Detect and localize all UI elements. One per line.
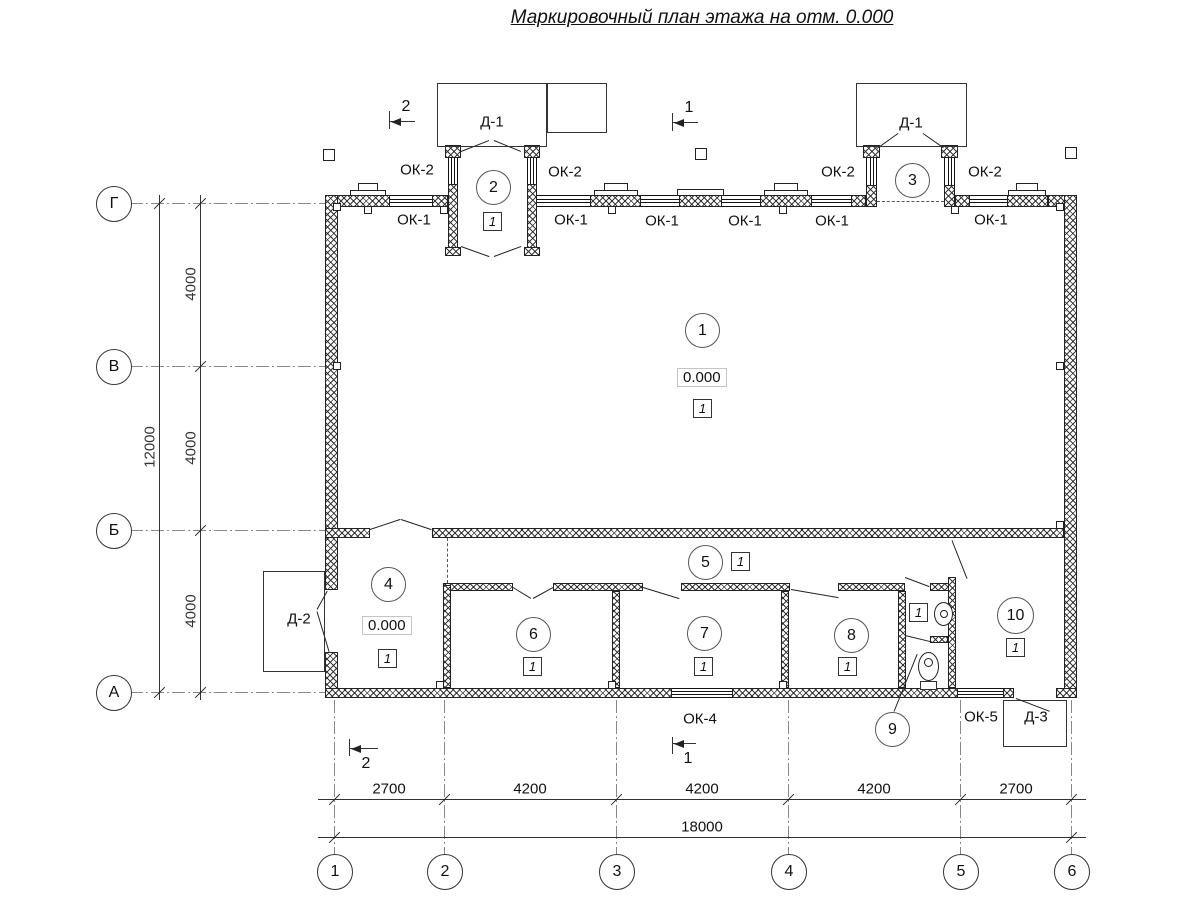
- room-number-label: 8: [847, 627, 856, 645]
- room-number-label: 9: [888, 721, 897, 739]
- wall-segment: [325, 528, 370, 538]
- door-swing-line: [513, 587, 531, 599]
- floor-type-label: 1: [737, 554, 744, 569]
- window-ok1-opening: [722, 195, 760, 207]
- floor-type-label: 1: [489, 214, 496, 229]
- wall-segment: [851, 195, 866, 207]
- room-number-5: 5: [688, 545, 723, 580]
- dim-value: 4000: [183, 431, 200, 464]
- section-number: 2: [402, 98, 411, 116]
- room-number-8: 8: [834, 618, 869, 653]
- section-number: 1: [684, 750, 693, 768]
- axis-line-6: [1071, 700, 1072, 854]
- room-number-2: 2: [476, 170, 511, 205]
- axis-bubble-row-b: Б: [96, 513, 132, 549]
- floor-type-label: 1: [844, 659, 851, 674]
- window-ok2-opening: [448, 158, 458, 184]
- dim-line-left-total: [159, 195, 160, 700]
- window-label-ok1: ОК-1: [554, 212, 588, 229]
- dim-value: 4200: [685, 781, 718, 798]
- floor-type-marker: 1: [909, 603, 928, 622]
- window-ok1-opening: [812, 195, 851, 207]
- door-swing-line: [905, 635, 931, 642]
- dim-value: 4200: [513, 781, 546, 798]
- elevation-label: 0.000: [683, 369, 721, 386]
- window-ok1-opening: [537, 195, 590, 207]
- floor-type-marker: 1: [483, 212, 502, 231]
- axis-line-1: [334, 700, 335, 854]
- door-swing-line: [533, 587, 554, 599]
- section-number: 2: [362, 755, 371, 773]
- opening-dashed-line: [877, 201, 944, 202]
- room-number-label: 4: [384, 576, 393, 594]
- room-number-label: 6: [529, 626, 538, 644]
- window-label-ok2: ОК-2: [400, 162, 434, 179]
- floor-type-label: 1: [699, 401, 706, 416]
- dim-value: 4000: [183, 267, 200, 300]
- door-swing-line: [952, 540, 968, 579]
- dim-line-left-segments: [200, 195, 201, 700]
- window-sill: [774, 183, 798, 191]
- room-number-label: 5: [701, 554, 710, 572]
- axis-line-3: [616, 700, 617, 854]
- window-ok2-opening: [944, 158, 955, 185]
- floor-plan-drawing: Маркировочный план этажа на отм. 0.000: [0, 0, 1200, 900]
- axis-line-v: [130, 366, 330, 367]
- vestibule-jamb: [524, 247, 540, 256]
- axis-line-4: [788, 700, 789, 854]
- window-ok2-opening: [866, 158, 877, 185]
- door-swing-line: [643, 587, 680, 599]
- window-ok2-opening: [527, 158, 537, 184]
- door-label-d2: Д-2: [287, 611, 311, 628]
- window-label-ok2: ОК-2: [968, 164, 1002, 181]
- partition-wall: [443, 585, 451, 688]
- dim-value: 4200: [857, 781, 890, 798]
- entrance-porch-outline: [547, 83, 607, 133]
- window-label-ok2: ОК-2: [821, 164, 855, 181]
- axis-bubble-row-g: Г: [96, 186, 132, 222]
- axis-label: 4: [785, 863, 794, 881]
- wall-segment: [681, 583, 790, 591]
- room-number-label: 3: [908, 172, 917, 190]
- axis-bubble-col-2: 2: [427, 854, 463, 890]
- room-number-label: 2: [489, 179, 498, 197]
- room-number-1: 1: [685, 313, 720, 348]
- door-label-d1: Д-1: [899, 115, 923, 132]
- pilaster: [436, 681, 444, 689]
- floor-type-marker: 1: [838, 657, 857, 676]
- door-swing-line: [791, 589, 838, 598]
- window-label-ok1: ОК-1: [397, 212, 431, 229]
- floor-type-marker: 1: [693, 399, 712, 418]
- pilaster: [951, 206, 959, 214]
- window-label-ok5: ОК-5: [964, 709, 998, 726]
- room-number-label: 10: [1007, 607, 1025, 625]
- vent-shaft-marker: [323, 149, 335, 161]
- section-arrow-icon: [674, 740, 684, 748]
- section-arrow-icon: [674, 119, 684, 127]
- section-number: 1: [685, 99, 694, 117]
- dim-line-bottom-total: [318, 837, 1086, 838]
- pilaster: [364, 206, 372, 214]
- wall-segment: [1064, 195, 1077, 698]
- window-label-ok1: ОК-1: [728, 213, 762, 230]
- window-sill: [604, 183, 628, 191]
- floor-type-label: 1: [915, 605, 922, 620]
- window-sill: [677, 189, 724, 196]
- window-label-ok1: ОК-1: [645, 213, 679, 230]
- partition-wall: [930, 636, 948, 643]
- pilaster: [1056, 203, 1064, 211]
- room-number-label: 1: [698, 322, 707, 340]
- dim-value: 2700: [999, 781, 1032, 798]
- pilaster: [440, 206, 448, 214]
- window-label-ok4: ОК-4: [683, 711, 717, 728]
- wall-segment: [866, 185, 877, 207]
- section-arrow-icon: [351, 745, 361, 753]
- open-partition-dashed: [447, 538, 448, 583]
- window-ok1-opening: [390, 195, 432, 207]
- axis-label: 3: [613, 863, 622, 881]
- window-sill: [1016, 183, 1038, 191]
- pilaster: [333, 362, 341, 370]
- axis-line-b: [130, 530, 330, 531]
- axis-label: 5: [957, 863, 966, 881]
- door-swing-line: [401, 519, 432, 530]
- room-number-9: 9: [875, 712, 910, 747]
- pilaster: [333, 203, 341, 211]
- wall-segment: [1056, 688, 1077, 698]
- axis-label: А: [109, 684, 120, 702]
- room-number-label: 7: [700, 625, 709, 643]
- axis-bubble-col-6: 6: [1054, 854, 1090, 890]
- axis-label: 6: [1068, 863, 1077, 881]
- dim-line-bottom-segments: [318, 799, 1086, 800]
- elevation-label: 0.000: [368, 617, 406, 634]
- axis-line-5: [960, 700, 961, 854]
- vent-shaft-marker: [1065, 147, 1077, 159]
- axis-label: 1: [331, 863, 340, 881]
- axis-label: В: [109, 358, 120, 376]
- wall-segment: [443, 583, 513, 591]
- pilaster: [608, 206, 616, 214]
- washbasin-icon: [940, 610, 948, 618]
- wall-segment: [527, 184, 537, 248]
- floor-type-marker: 1: [731, 552, 750, 571]
- pilaster: [1056, 521, 1064, 529]
- vent-shaft-marker: [695, 148, 707, 160]
- pilaster: [779, 681, 787, 689]
- room-number-4: 4: [371, 567, 406, 602]
- axis-line-2: [444, 700, 445, 854]
- floor-type-label: 1: [529, 659, 536, 674]
- axis-bubble-row-a: А: [96, 675, 132, 711]
- floor-type-marker: 1: [378, 649, 397, 668]
- partition-wall: [898, 591, 906, 688]
- wall-segment: [1007, 195, 1048, 207]
- elevation-mark: 0.000: [362, 616, 412, 635]
- pilaster: [779, 206, 787, 214]
- axis-bubble-col-3: 3: [599, 854, 635, 890]
- wall-segment: [838, 583, 905, 591]
- door-label-d3: Д-3: [1024, 709, 1048, 726]
- dim-total-value: 18000: [681, 819, 723, 836]
- floor-type-label: 1: [700, 659, 707, 674]
- window-ok5-opening: [958, 688, 1003, 698]
- toilet-icon: [924, 658, 933, 667]
- room-number-6: 6: [516, 617, 551, 652]
- wall-segment: [448, 184, 458, 248]
- axis-label: Б: [109, 522, 120, 540]
- pilaster: [1056, 362, 1064, 370]
- pilaster: [608, 681, 616, 689]
- section-arrow-icon: [391, 118, 401, 126]
- window-ok1-opening: [641, 195, 679, 207]
- window-label-ok1: ОК-1: [974, 212, 1008, 229]
- axis-bubble-col-4: 4: [771, 854, 807, 890]
- partition-wall: [781, 591, 789, 688]
- toilet-icon: [920, 681, 937, 690]
- floor-type-marker: 1: [694, 657, 713, 676]
- wall-segment: [944, 185, 955, 207]
- room-number-7: 7: [687, 616, 722, 651]
- axis-bubble-col-5: 5: [943, 854, 979, 890]
- axis-bubble-col-1: 1: [317, 854, 353, 890]
- dim-value: 2700: [372, 781, 405, 798]
- axis-label: 2: [441, 863, 450, 881]
- wall-segment: [325, 688, 672, 698]
- wall-segment: [1003, 688, 1014, 698]
- room-number-10: 10: [997, 597, 1034, 634]
- window-ok4-opening: [672, 688, 732, 698]
- elevation-mark: 0.000: [677, 368, 727, 387]
- floor-type-marker: 1: [1006, 638, 1025, 657]
- section-mark-1-bottom: [672, 737, 673, 754]
- window-label-ok1: ОК-1: [815, 213, 849, 230]
- floor-type-label: 1: [1012, 640, 1019, 655]
- floor-type-label: 1: [384, 651, 391, 666]
- partition-wall: [612, 591, 620, 688]
- door-label-d1: Д-1: [480, 114, 504, 131]
- page-title: Маркировочный план этажа на отм. 0.000: [511, 7, 894, 29]
- vestibule-jamb: [445, 247, 461, 256]
- axis-label: Г: [110, 195, 119, 213]
- door-swing-line: [905, 577, 930, 587]
- door-swing-line: [461, 246, 490, 257]
- window-label-ok2: ОК-2: [548, 164, 582, 181]
- partition-wall: [948, 577, 956, 688]
- room-number-3: 3: [895, 163, 930, 198]
- wall-segment: [679, 195, 722, 207]
- floor-type-marker: 1: [523, 657, 542, 676]
- axis-bubble-row-v: В: [96, 349, 132, 385]
- window-sill: [358, 183, 378, 191]
- window-ok1-opening: [970, 195, 1007, 207]
- dim-value: 4000: [183, 594, 200, 627]
- wall-segment: [553, 583, 643, 591]
- door-swing-line: [370, 519, 401, 530]
- door-swing-line: [494, 246, 522, 257]
- section-mark-2-top: [389, 111, 390, 129]
- wall-segment: [432, 528, 1064, 538]
- dim-total-value: 12000: [142, 426, 159, 468]
